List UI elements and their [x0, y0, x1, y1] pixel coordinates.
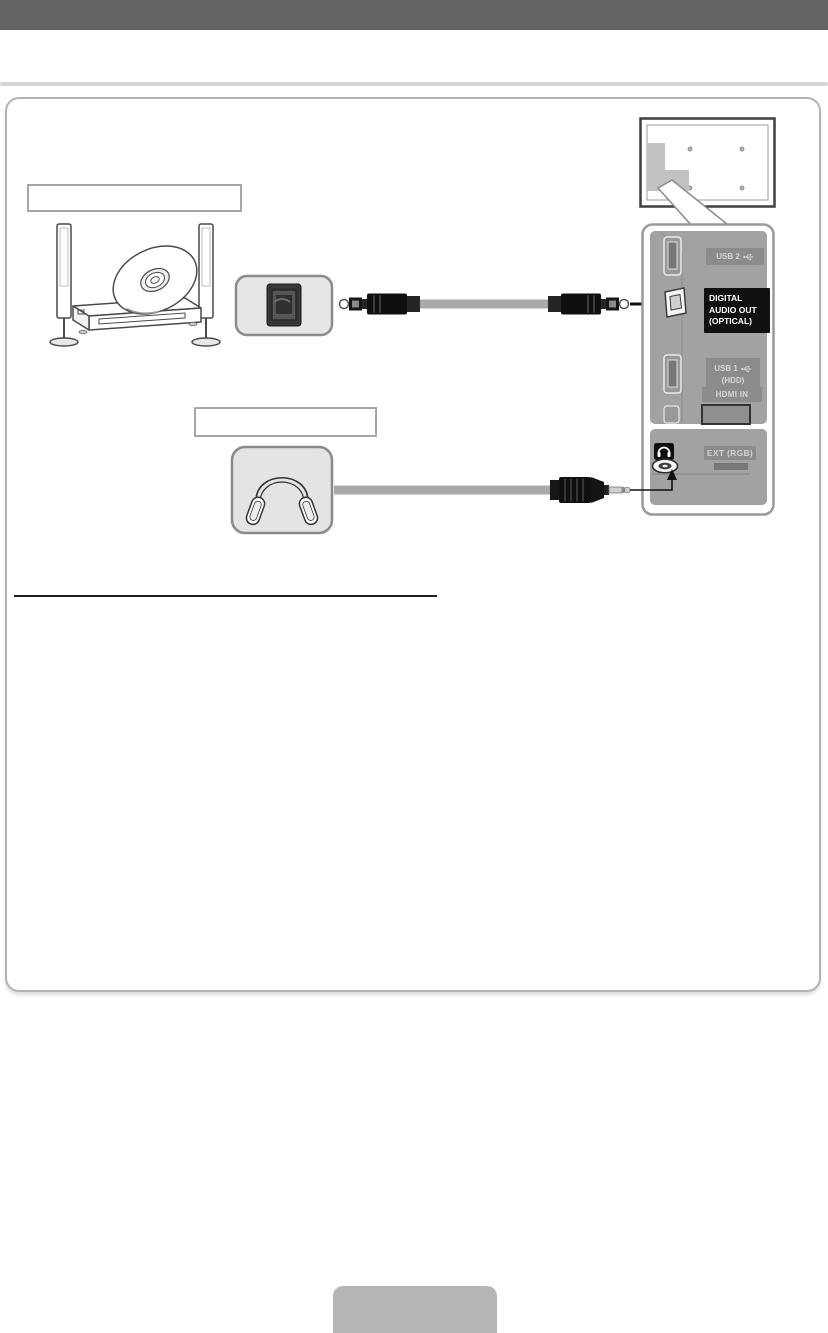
usb1-port	[664, 355, 681, 393]
optical-out-box	[234, 274, 334, 337]
optical-port-icon	[267, 284, 301, 326]
toslink-connector-right	[548, 294, 629, 315]
usb-trident-icon	[741, 365, 752, 373]
hdmi-badge: HDMI IN	[702, 387, 762, 402]
speaker-right	[192, 224, 220, 346]
digital-audio-line2: AUDIO OUT	[709, 305, 757, 316]
device-label-box-2	[194, 407, 377, 437]
digital-audio-line1: DIGITAL	[709, 293, 742, 304]
ext-rgb-badge: EXT (RGB)	[704, 446, 756, 460]
content-panel: USB 2 DIGITAL AUDIO OUT (OPTICAL) USB 1	[5, 97, 821, 992]
usb2-port	[664, 237, 681, 275]
usb2-badge: USB 2	[706, 248, 764, 265]
audio-plug-35mm	[550, 477, 630, 503]
screw-hole	[740, 147, 744, 151]
hdmi-port	[702, 405, 750, 424]
screw-hole	[688, 147, 692, 151]
header-bar	[0, 0, 828, 30]
usb-trident-icon	[743, 253, 754, 261]
home-cinema-illustration	[35, 218, 233, 350]
ext-slot	[714, 463, 748, 470]
partial-port	[664, 406, 679, 423]
page-separator	[0, 82, 828, 86]
hdmi-badge-label: HDMI IN	[716, 390, 749, 399]
digital-audio-out-badge: DIGITAL AUDIO OUT (OPTICAL)	[704, 288, 770, 333]
usb2-badge-label: USB 2	[716, 252, 740, 261]
footnote-rule	[14, 595, 437, 597]
toslink-connector-left	[340, 294, 421, 315]
arrow-up-icon	[630, 469, 677, 490]
headphone-cable	[334, 460, 680, 512]
digital-audio-line3: (OPTICAL)	[709, 316, 752, 327]
optical-in-port	[665, 288, 686, 317]
speaker-left	[50, 224, 78, 346]
ext-rgb-badge-label: EXT (RGB)	[707, 448, 753, 458]
headphones-box	[230, 445, 334, 535]
headphones-icon	[654, 443, 674, 460]
callout-funnel	[644, 178, 769, 226]
bottom-page-tab	[333, 1286, 497, 1333]
device-label-box-1	[27, 184, 242, 212]
usb1-badge-line1: USB 1	[714, 363, 738, 374]
cable-run	[420, 300, 548, 309]
cable-run	[334, 486, 550, 495]
usb1-badge-line2: (HDD)	[722, 375, 745, 386]
